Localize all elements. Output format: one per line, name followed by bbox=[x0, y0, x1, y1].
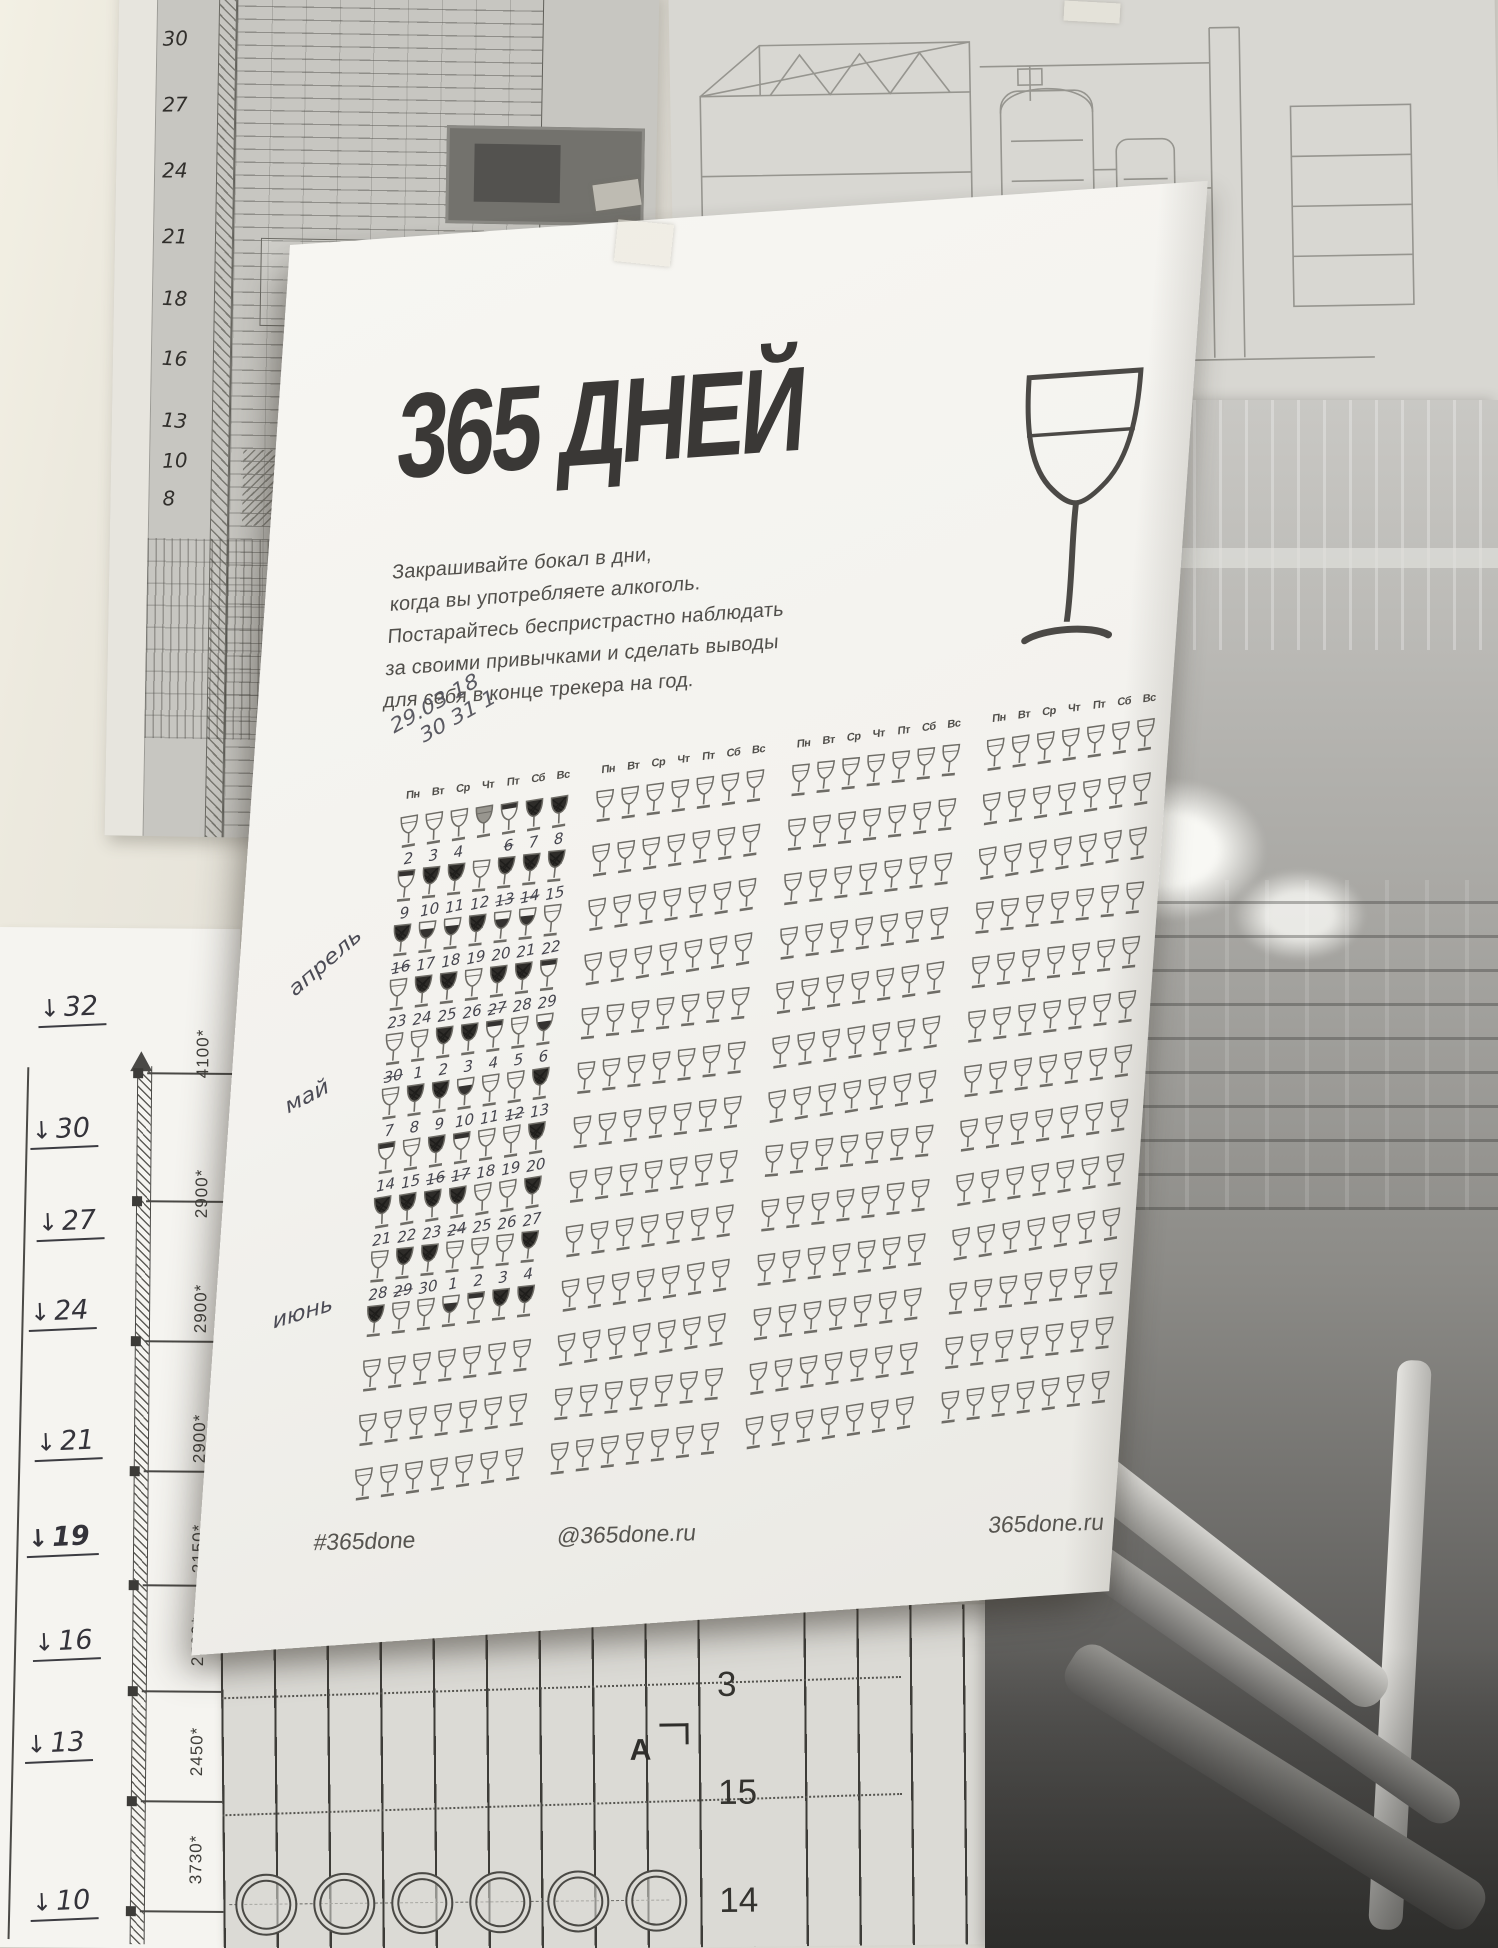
wine-glass-icon bbox=[362, 1303, 387, 1340]
tracker-day-cell bbox=[876, 911, 903, 949]
wine-glass-icon bbox=[630, 1321, 653, 1359]
tracker-day-cell bbox=[351, 1465, 378, 1503]
tracker-day-cell bbox=[581, 950, 607, 988]
tracker-day-cell bbox=[397, 812, 423, 850]
tracker-day-cell bbox=[808, 813, 836, 850]
wine-glass-icon bbox=[457, 1021, 481, 1058]
wine-glass-icon bbox=[692, 774, 716, 811]
tracker-day-cell bbox=[905, 854, 933, 891]
tracker-day-cell bbox=[1033, 729, 1060, 767]
tracker-day-cell bbox=[1083, 722, 1110, 760]
tracker-day-cell bbox=[1108, 719, 1135, 757]
wine-glass-icon bbox=[399, 1136, 423, 1174]
tracker-day-cell bbox=[1024, 1215, 1050, 1253]
wine-glass-icon bbox=[978, 1168, 1002, 1206]
tracker-day-cell bbox=[719, 1094, 747, 1131]
wine-glass-icon bbox=[969, 1277, 995, 1313]
tracker-day-cell bbox=[869, 1020, 896, 1058]
tracker-day-cell bbox=[608, 1270, 635, 1308]
wine-glass-icon bbox=[689, 828, 713, 865]
wine-glass-icon bbox=[801, 922, 825, 959]
tracker-day-cell bbox=[487, 1286, 515, 1323]
wine-glass-icon bbox=[478, 1072, 502, 1109]
tracker-day-cell bbox=[439, 915, 467, 952]
wine-glass-icon bbox=[862, 752, 888, 788]
wine-glass-icon bbox=[979, 790, 1003, 828]
wine-glass-icon bbox=[890, 1071, 913, 1109]
wine-glass-icon bbox=[963, 1008, 988, 1045]
tracker-day-cell bbox=[642, 780, 669, 818]
tracker-day-cell bbox=[635, 889, 662, 927]
tracker-day-cell bbox=[1096, 883, 1125, 920]
wine-glass-icon bbox=[949, 1225, 972, 1263]
tracker-day-cell bbox=[991, 1328, 1019, 1365]
wine-glass-icon bbox=[476, 1449, 500, 1486]
tracker-day-cell bbox=[858, 806, 886, 843]
wine-glass-icon bbox=[459, 1344, 484, 1381]
tracker-day-cell bbox=[828, 1241, 856, 1278]
tracker-day-cell bbox=[446, 1183, 472, 1221]
elevation-mark-32: 32 bbox=[37, 990, 107, 1028]
tracker-day-cell bbox=[1053, 1157, 1080, 1195]
wine-glass-icon bbox=[378, 1085, 402, 1122]
tracker-day-cell bbox=[596, 1433, 624, 1470]
wine-glass-icon bbox=[514, 905, 539, 942]
wine-glass-icon bbox=[696, 1421, 721, 1458]
scale-node bbox=[130, 1466, 140, 1476]
tracker-day-cell bbox=[588, 841, 615, 879]
tracker-day-cell bbox=[819, 1026, 846, 1064]
tracker-day-cell bbox=[797, 975, 824, 1013]
tracker-day-cell bbox=[983, 736, 1010, 774]
wine-glass-icon bbox=[994, 1274, 1020, 1310]
tracker-day-cell bbox=[426, 1455, 453, 1493]
scale-ticks bbox=[0, 927, 240, 929]
tracker-day-cell bbox=[430, 1401, 457, 1439]
wine-glass-icon bbox=[760, 1143, 786, 1179]
tracker-day-cell bbox=[637, 1212, 664, 1250]
tracker-day-cell bbox=[1001, 841, 1027, 879]
wine-glass-icon bbox=[1053, 1158, 1077, 1196]
wine-glass-icon bbox=[883, 803, 908, 840]
tracker-day-cell bbox=[790, 1084, 816, 1122]
tracker-day-cell bbox=[892, 1394, 919, 1432]
blueprint-level-number: 24 bbox=[162, 158, 187, 182]
tracker-day-cell bbox=[371, 1193, 397, 1231]
wine-glass-icon bbox=[1083, 723, 1107, 760]
wine-glass-icon bbox=[903, 1232, 928, 1269]
tracker-day-cell bbox=[989, 1004, 1017, 1041]
wine-glass-icon bbox=[901, 908, 925, 945]
wine-glass-icon bbox=[872, 966, 896, 1003]
tracker-day-cell bbox=[882, 1180, 910, 1217]
tracker-day-cell bbox=[451, 1452, 478, 1490]
wine-glass-icon bbox=[631, 944, 654, 982]
wine-glass-icon bbox=[485, 963, 510, 1000]
tracker-day-cell bbox=[832, 1187, 860, 1224]
tracker-day-cell bbox=[1076, 831, 1102, 869]
tracker-day-cell bbox=[512, 1283, 540, 1320]
footer-handle: @365done.ru bbox=[556, 1519, 698, 1550]
tracker-day-cell bbox=[658, 1263, 685, 1301]
wine-glass-icon bbox=[507, 1014, 531, 1051]
wine-glass-icon bbox=[749, 1306, 773, 1343]
wine-glass-icon bbox=[487, 1286, 512, 1323]
tracker-day-cell bbox=[723, 1039, 751, 1076]
wine-glass-icon bbox=[698, 1043, 723, 1080]
tracker-day-cell bbox=[1103, 1151, 1130, 1189]
wine-glass-icon bbox=[648, 1050, 673, 1087]
tracker-day-cell bbox=[378, 1084, 405, 1122]
footer-site: 365done.ru bbox=[987, 1509, 1106, 1539]
tracker-day-cell bbox=[865, 1074, 891, 1112]
wine-glass-icon bbox=[933, 797, 958, 834]
tracker-day-cell bbox=[840, 1077, 866, 1115]
wine-glass-icon bbox=[771, 1357, 795, 1394]
tracker-day-cell bbox=[821, 1350, 848, 1388]
wine-glass-icon bbox=[633, 1267, 657, 1305]
tracker-day-cell bbox=[801, 921, 828, 959]
tracker-day-cell bbox=[542, 848, 571, 885]
tracker-day-cell bbox=[880, 857, 908, 894]
wine-glass-icon bbox=[776, 925, 800, 962]
wine-glass-icon bbox=[1006, 1110, 1030, 1147]
wine-glass-icon bbox=[714, 825, 738, 862]
tracker-day-cell bbox=[606, 946, 632, 984]
column-circle bbox=[235, 1873, 298, 1936]
tracker-day-cell bbox=[890, 1071, 916, 1109]
wine-glass-icon bbox=[876, 912, 900, 949]
tracker-day-cell bbox=[739, 821, 766, 859]
tracker-day-cell bbox=[689, 828, 716, 866]
tracker-day-cell bbox=[1107, 1097, 1134, 1135]
weekday-header: Пн bbox=[985, 710, 1011, 733]
tracker-day-cell bbox=[389, 922, 417, 959]
wine-glass-icon bbox=[967, 954, 992, 991]
wine-glass-icon bbox=[1069, 1264, 1095, 1300]
wine-glass-icon bbox=[467, 858, 493, 894]
tracker-day-cell bbox=[765, 1087, 791, 1125]
tracker-day-cell bbox=[815, 1081, 841, 1119]
tracker-day-cell bbox=[453, 1075, 480, 1113]
wine-glass-icon bbox=[656, 940, 679, 978]
weekday-header: Сб bbox=[915, 720, 941, 743]
scale-node bbox=[133, 1068, 143, 1078]
wine-glass-icon bbox=[660, 886, 684, 924]
tracker-day-cell bbox=[930, 850, 958, 887]
wine-glass-icon bbox=[625, 1376, 651, 1412]
tracker-day-cell bbox=[621, 1430, 649, 1467]
drawing-border-line bbox=[8, 1067, 30, 1939]
wine-glass-icon bbox=[1033, 729, 1057, 766]
tracker-day-cell bbox=[546, 1440, 574, 1477]
wine-glass-icon bbox=[371, 1193, 394, 1231]
wine-glass-icon bbox=[739, 822, 763, 859]
tracker-day-cell bbox=[501, 1445, 528, 1483]
scale-level-line bbox=[147, 1072, 235, 1074]
tracker-day-cell bbox=[1067, 940, 1095, 977]
wine-glass-icon bbox=[810, 1136, 836, 1172]
wine-glass-icon bbox=[380, 1408, 404, 1445]
tracker-day-cell bbox=[1099, 1205, 1125, 1243]
wine-glass-icon bbox=[608, 1270, 632, 1308]
tracker-day-cell bbox=[619, 1107, 647, 1144]
column-circle bbox=[313, 1873, 376, 1936]
tracker-day-cell bbox=[903, 1231, 931, 1268]
wine-glass-icon bbox=[912, 746, 938, 782]
tracker-day-cell bbox=[846, 1346, 873, 1384]
wine-glass-icon bbox=[833, 810, 858, 847]
tracker-day-cell bbox=[374, 1139, 401, 1177]
tracker-day-cell bbox=[1031, 1106, 1058, 1144]
scale-node bbox=[128, 1686, 138, 1696]
blueprint-number-14: 14 bbox=[719, 1881, 758, 1921]
wine-glass-icon bbox=[875, 1289, 899, 1326]
tracker-day-cell bbox=[871, 1343, 898, 1381]
wine-glass-icon bbox=[535, 956, 560, 993]
tracker-day-cell bbox=[424, 1132, 451, 1170]
blueprint-level-number: 18 bbox=[162, 286, 188, 311]
tracker-day-cell bbox=[521, 1173, 547, 1211]
wine-glass-icon bbox=[885, 1126, 911, 1162]
tracker-day-cell bbox=[615, 1161, 642, 1199]
wine-glass-icon bbox=[623, 1053, 648, 1090]
tracker-day-cell bbox=[631, 943, 657, 981]
tracker-day-cell bbox=[716, 1148, 743, 1186]
tracker-day-cell bbox=[712, 1202, 739, 1240]
wine-glass-icon bbox=[1130, 771, 1154, 809]
stitched-seam-line bbox=[221, 1676, 901, 1699]
wine-glass-icon bbox=[1092, 937, 1117, 974]
weekday-header: Пн bbox=[595, 762, 621, 785]
tracker-day-cell bbox=[485, 963, 513, 1000]
tracker-day-cell bbox=[780, 870, 808, 907]
wine-glass-icon bbox=[396, 1190, 419, 1228]
wine-glass-icon bbox=[1099, 1206, 1122, 1244]
tracker-day-cell bbox=[539, 902, 567, 939]
tracker-day-cell bbox=[757, 1197, 785, 1234]
weekday-header: Ср bbox=[645, 755, 671, 778]
tracker-day-cell bbox=[617, 784, 644, 822]
wine-glass-icon bbox=[422, 809, 445, 847]
scale-node bbox=[131, 1336, 141, 1346]
wine-glass-icon bbox=[417, 864, 443, 900]
wine-glass-icon bbox=[383, 1354, 408, 1391]
wine-glass-icon bbox=[547, 793, 570, 831]
tracker-day-cell bbox=[830, 864, 858, 901]
tracker-day-cell bbox=[605, 1324, 631, 1362]
weekday-header: Пт bbox=[1086, 697, 1112, 720]
dimension-label: 4100* bbox=[193, 1029, 213, 1079]
wine-glass-icon bbox=[1035, 1053, 1059, 1090]
tracker-day-cell bbox=[867, 1397, 894, 1435]
tracker-day-cell bbox=[726, 985, 755, 1022]
wine-glass-icon bbox=[650, 1373, 676, 1409]
wine-glass-icon bbox=[612, 1216, 636, 1253]
month-note-июнь: июнь bbox=[271, 1292, 334, 1335]
tracker-day-cell bbox=[778, 1248, 806, 1285]
wine-glass-icon bbox=[516, 1229, 542, 1265]
wine-glass-icon bbox=[1114, 988, 1139, 1025]
tracker-day-cell bbox=[406, 1027, 433, 1065]
wine-glass-icon bbox=[405, 1405, 429, 1442]
tracker-day-cell bbox=[1012, 1379, 1040, 1416]
wine-glass-icon bbox=[539, 902, 564, 939]
tracker-day-cell bbox=[923, 959, 950, 997]
wine-glass-icon bbox=[1117, 934, 1142, 971]
wine-glass-icon bbox=[499, 1123, 523, 1161]
tracker-day-cell bbox=[522, 796, 548, 834]
tracker-day-cell bbox=[842, 1401, 869, 1439]
tracker-day-cell bbox=[387, 1299, 415, 1336]
tracker-day-cell bbox=[489, 908, 517, 945]
scale-top-arrow-icon bbox=[130, 1040, 152, 1071]
wine-glass-icon bbox=[803, 1245, 828, 1282]
wine-glass-icon bbox=[451, 1452, 475, 1489]
wine-glass-icon bbox=[705, 1311, 728, 1349]
tracker-day-cell bbox=[471, 1180, 497, 1218]
tracker-day-cell bbox=[1058, 726, 1085, 764]
wine-glass-icon bbox=[1010, 1056, 1034, 1093]
tracker-day-cell bbox=[660, 886, 687, 924]
wine-glass-icon bbox=[844, 1024, 868, 1062]
tracker-day-cell bbox=[915, 1068, 941, 1106]
tracker-day-cell bbox=[462, 1289, 490, 1326]
wine-glass-icon bbox=[869, 1020, 893, 1058]
tracker-day-cell bbox=[1085, 1046, 1112, 1084]
tracker-day-cell bbox=[460, 966, 488, 1003]
elevation-mark-24: 24 bbox=[27, 1294, 97, 1332]
wine-glass-icon bbox=[687, 1206, 711, 1243]
weekday-header: Пн bbox=[399, 787, 425, 810]
wine-glass-icon bbox=[691, 1152, 715, 1189]
tracker-day-cell bbox=[1028, 1161, 1055, 1199]
blueprint-level-number: 27 bbox=[162, 92, 188, 116]
wine-glass-icon bbox=[717, 771, 741, 808]
wine-glass-icon bbox=[581, 950, 604, 988]
tracker-day-cell bbox=[431, 1024, 458, 1062]
tracker-day-cell bbox=[399, 1135, 426, 1173]
tape-piece bbox=[614, 219, 674, 267]
wine-glass-icon bbox=[799, 1299, 823, 1336]
wine-glass-icon bbox=[685, 883, 709, 921]
tracker-day-cell bbox=[673, 1046, 701, 1083]
blueprint-level-number: 8 bbox=[162, 486, 175, 510]
tracker-day-cell bbox=[1130, 770, 1157, 808]
column-circle bbox=[469, 1871, 532, 1934]
tracker-day-cell bbox=[644, 1104, 672, 1141]
tracker-day-cell bbox=[949, 1225, 975, 1263]
wine-glass-icon bbox=[840, 1078, 863, 1116]
wine-glass-icon bbox=[700, 1366, 726, 1402]
wine-glass-icon bbox=[753, 1251, 778, 1288]
wine-glass-icon bbox=[385, 976, 410, 1013]
wine-glass-icon bbox=[621, 1430, 646, 1467]
blueprint-bottom: A 31514 bbox=[220, 1604, 1024, 1948]
tracker-day-cell bbox=[640, 1158, 667, 1196]
tracker-day-cell bbox=[898, 962, 925, 1000]
wine-glass-icon bbox=[474, 1126, 498, 1164]
tracker-day-cell bbox=[562, 1222, 589, 1260]
wine-glass-icon bbox=[524, 1119, 548, 1157]
wine-glass-icon bbox=[857, 1184, 882, 1221]
wine-glass-icon bbox=[642, 781, 666, 818]
blueprint-number-15: 15 bbox=[718, 1773, 757, 1813]
wine-glass-icon bbox=[835, 1133, 861, 1169]
tracker-day-cell bbox=[681, 937, 707, 975]
elevation-mark-10: 10 bbox=[29, 1884, 99, 1922]
wine-glass-icon bbox=[853, 1238, 878, 1275]
wine-glass-icon bbox=[573, 1059, 598, 1096]
tracker-day-cell bbox=[667, 777, 694, 815]
tracker-day-cell bbox=[648, 1049, 676, 1086]
wine-glass-icon bbox=[894, 1017, 918, 1055]
tracker-day-cell bbox=[630, 1321, 656, 1359]
tracker-day-cell bbox=[767, 1411, 794, 1449]
tracker-day-cell bbox=[547, 792, 573, 830]
tracker-day-cell bbox=[663, 831, 690, 869]
tracker-day-cell bbox=[1049, 1212, 1075, 1250]
wine-glass-icon bbox=[1017, 947, 1042, 984]
wine-glass-icon bbox=[824, 1296, 848, 1333]
weekday-header: Пт bbox=[890, 723, 916, 746]
wine-glass-icon bbox=[706, 934, 729, 972]
wine-glass-icon bbox=[391, 1245, 417, 1281]
wine-glass-illustration bbox=[999, 363, 1151, 666]
wine-glass-icon bbox=[655, 1318, 678, 1356]
tracker-day-cell bbox=[706, 933, 732, 971]
tracker-day-cell bbox=[974, 1222, 1000, 1260]
tracker-day-cell bbox=[555, 1330, 581, 1368]
tracker-day-cell bbox=[771, 1356, 798, 1394]
wine-glass-icon bbox=[962, 1386, 987, 1423]
wine-glass-icon bbox=[910, 1123, 936, 1159]
wine-glass-icon bbox=[830, 864, 855, 901]
tracker-day-cell bbox=[908, 800, 936, 837]
tracker-day-cell bbox=[410, 973, 438, 1010]
tracker-day-cell bbox=[598, 1056, 626, 1093]
wine-glass-icon bbox=[503, 1068, 527, 1105]
tracker-day-cell bbox=[580, 1327, 606, 1365]
wine-glass-icon bbox=[1044, 1267, 1070, 1303]
weekday-header: Вс bbox=[745, 742, 771, 765]
wine-glass-icon bbox=[414, 919, 439, 956]
dimension-label: 2900* bbox=[192, 1169, 212, 1219]
blueprint-level-number: 16 bbox=[161, 346, 188, 371]
wine-glass-icon bbox=[635, 889, 659, 927]
wine-glass-icon bbox=[600, 1379, 626, 1415]
wine-glass-icon bbox=[592, 787, 616, 824]
wine-glass-icon bbox=[716, 1148, 740, 1185]
month-note-апрель: апрель bbox=[284, 924, 367, 1001]
tracker-day-cell bbox=[857, 1184, 885, 1221]
wine-glass-icon bbox=[723, 1040, 748, 1077]
elevation-mark-27: 27 bbox=[35, 1204, 105, 1242]
wine-glass-icon bbox=[1039, 998, 1064, 1035]
wine-glass-icon bbox=[424, 1133, 448, 1171]
wine-glass-icon bbox=[817, 1404, 841, 1442]
scale-node bbox=[126, 1906, 136, 1916]
tracker-day-cell bbox=[385, 976, 413, 1013]
wine-glass-icon bbox=[646, 1427, 671, 1464]
tracker-day-cell bbox=[844, 1023, 871, 1061]
tracker-day-cell bbox=[478, 1071, 505, 1109]
tracker-day-cell bbox=[669, 1100, 697, 1137]
wine-glass-icon bbox=[792, 1408, 816, 1446]
dimension-label: 2900* bbox=[191, 1284, 211, 1334]
wine-glass-icon bbox=[742, 768, 766, 805]
elevation-mark-19: 19 bbox=[25, 1520, 98, 1558]
